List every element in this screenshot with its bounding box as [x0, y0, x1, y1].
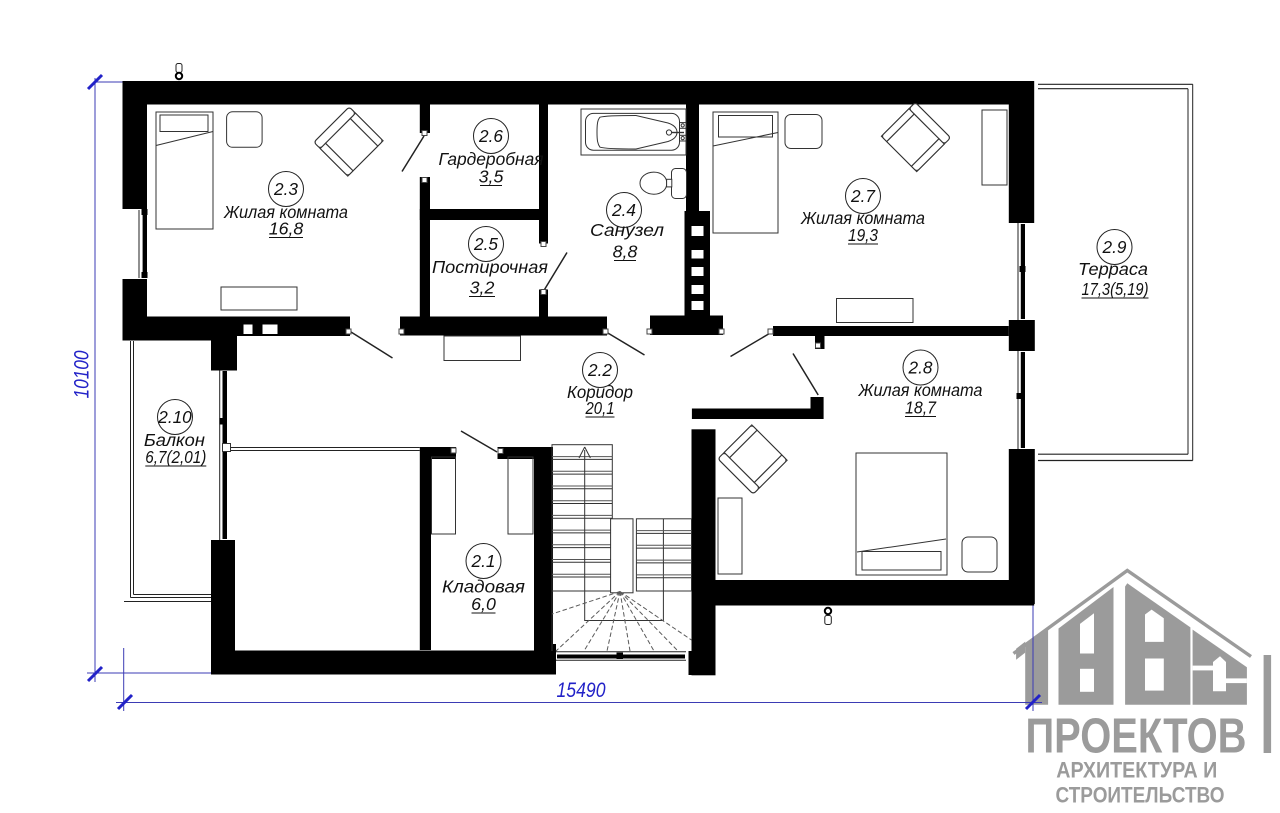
svg-text:2.4: 2.4 — [611, 200, 636, 220]
svg-text:10100: 10100 — [71, 350, 94, 398]
svg-text:АРХИТЕКТУРА И: АРХИТЕКТУРА И — [1056, 758, 1217, 783]
svg-text:8,8: 8,8 — [613, 242, 638, 262]
svg-text:2.9: 2.9 — [1102, 237, 1127, 257]
svg-text:17,3(5,19): 17,3(5,19) — [1082, 279, 1149, 299]
svg-text:15490: 15490 — [557, 679, 606, 702]
svg-text:3,2: 3,2 — [470, 278, 495, 298]
svg-text:6,7(2,01): 6,7(2,01) — [145, 447, 206, 467]
svg-text:Постирочная: Постирочная — [432, 257, 548, 277]
svg-text:2.5: 2.5 — [473, 234, 498, 254]
svg-text:19,3: 19,3 — [848, 225, 878, 245]
svg-text:2.8: 2.8 — [908, 358, 933, 378]
svg-text:2.7: 2.7 — [850, 186, 876, 206]
svg-text:2.1: 2.1 — [471, 551, 496, 571]
svg-text:16,8: 16,8 — [269, 219, 304, 239]
svg-text:СТРОИТЕЛЬСТВО: СТРОИТЕЛЬСТВО — [1056, 783, 1225, 808]
svg-text:Санузел: Санузел — [590, 220, 664, 240]
svg-text:Терраса: Терраса — [1078, 259, 1148, 279]
svg-text:ПРОЕКТОВ: ПРОЕКТОВ — [1026, 710, 1247, 764]
svg-text:2.6: 2.6 — [478, 126, 503, 146]
svg-text:2.10: 2.10 — [157, 407, 192, 427]
svg-text:6,0: 6,0 — [471, 594, 496, 614]
svg-text:2.2: 2.2 — [587, 360, 612, 380]
svg-text:18,7: 18,7 — [905, 398, 937, 418]
svg-text:2.3: 2.3 — [273, 179, 298, 199]
svg-text:3,5: 3,5 — [479, 167, 504, 187]
svg-text:20,1: 20,1 — [585, 398, 615, 418]
